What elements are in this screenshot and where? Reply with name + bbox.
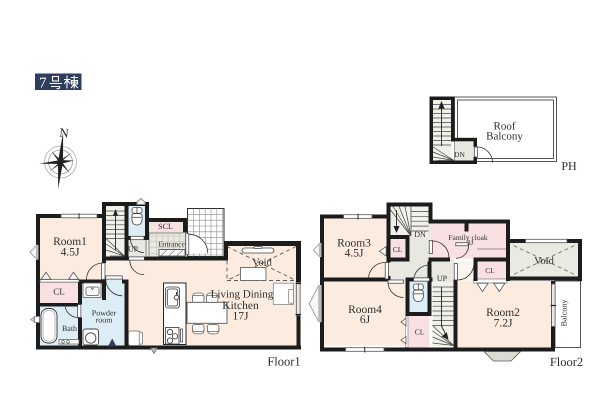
svg-text:CL: CL [415, 328, 425, 337]
svg-text:SCL: SCL [158, 222, 173, 231]
svg-text:Bath: Bath [62, 324, 77, 333]
svg-text:7: 7 [39, 76, 47, 92]
svg-text:Void: Void [534, 256, 554, 267]
svg-text:UP: UP [128, 245, 139, 254]
svg-text:Void: Void [252, 258, 272, 269]
svg-text:17J: 17J [233, 311, 250, 323]
svg-text:Entrance: Entrance [158, 240, 185, 249]
svg-text:7.2J: 7.2J [494, 318, 513, 330]
svg-text:Living Dining: Living Dining [211, 289, 274, 301]
svg-text:PH: PH [561, 159, 577, 173]
svg-text:Floor1: Floor1 [267, 355, 300, 369]
svg-text:Balcony: Balcony [486, 131, 523, 143]
svg-text:DN: DN [414, 230, 426, 239]
svg-text:CL: CL [53, 287, 65, 297]
svg-text:Floor2: Floor2 [550, 355, 583, 369]
svg-text:CL: CL [485, 266, 495, 275]
svg-text:4.5J: 4.5J [61, 247, 80, 259]
svg-text:DN: DN [454, 150, 465, 159]
svg-text:room: room [96, 316, 114, 325]
svg-text:4.5J: 4.5J [345, 248, 364, 260]
svg-text:CL: CL [393, 245, 403, 254]
svg-text:UP: UP [437, 274, 448, 283]
svg-text:3J: 3J [467, 238, 474, 247]
svg-text:6J: 6J [360, 314, 371, 326]
svg-text:Balcony: Balcony [560, 300, 569, 327]
